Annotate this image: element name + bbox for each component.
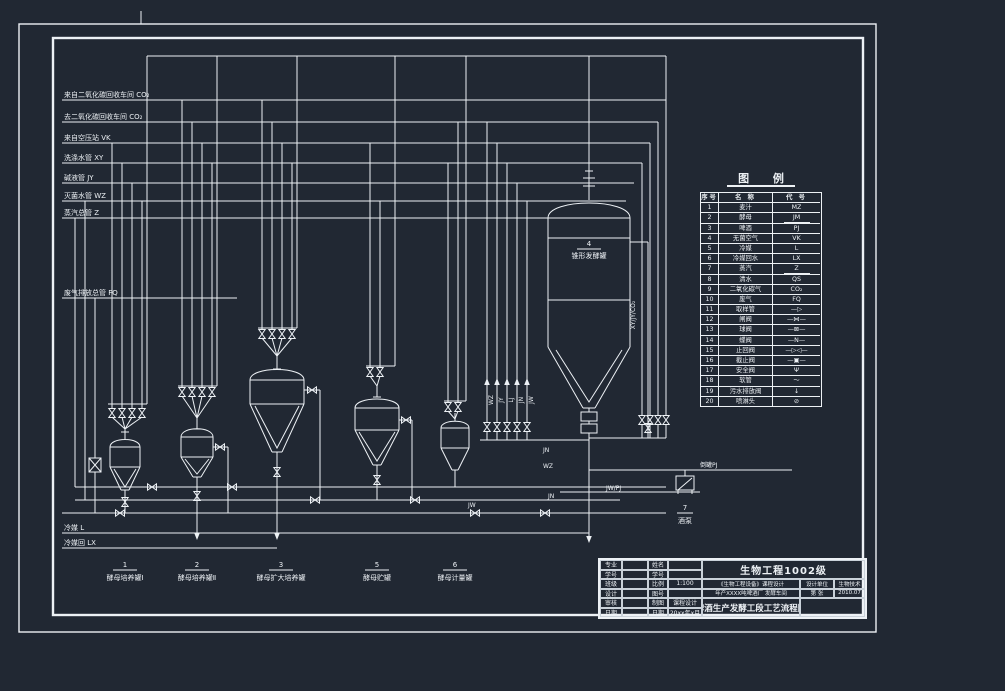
- legend-rows: 1 麦汁 MZ 2 酵母 JM 3 啤酒: [701, 203, 821, 406]
- tb-value: [622, 608, 648, 618]
- supply-label-xy: 洗涤水管 XY: [64, 153, 104, 162]
- legend-row-name: 冷媒: [719, 244, 773, 254]
- legend-row-name: 二氧化碳气: [719, 285, 773, 295]
- legend-row: 20 喷淋头 ⊘: [701, 397, 821, 406]
- coolant-return-label: 冷媒回 LX: [64, 538, 96, 547]
- equip-6-name: 酵母计量罐: [438, 573, 473, 582]
- feed-tag-jy: JY: [498, 397, 505, 404]
- equip-3-no: 3: [279, 561, 283, 569]
- legend-row-no: 16: [701, 356, 719, 366]
- legend-row-no: 14: [701, 336, 719, 346]
- legend-row-no: 17: [701, 366, 719, 376]
- equip-6-no: 6: [453, 561, 458, 569]
- legend-row-no: 10: [701, 295, 719, 305]
- legend-row-name: 止回阀: [719, 346, 773, 356]
- valves: [109, 330, 669, 517]
- tb-sheet: 第 张: [800, 589, 834, 599]
- tb-org: 生物技术: [834, 579, 865, 589]
- legend-row: 10 废气 FQ: [701, 295, 821, 305]
- tb-date: 2010.07: [834, 589, 865, 599]
- legend-row-no: 8: [701, 275, 719, 285]
- legend-row-code: FQ: [773, 295, 820, 305]
- beer-transfer-tag: 倒罐PJ: [700, 461, 718, 469]
- equip-5-no: 5: [375, 561, 379, 569]
- legend-row-code: MZ: [773, 203, 820, 213]
- tb-subtitle: 年产XXXX吨啤酒厂 发酵车间: [702, 589, 800, 599]
- vessel-5: [355, 397, 399, 465]
- legend-row-code: QS: [773, 275, 820, 285]
- legend-row-code: —▷◁—: [773, 346, 820, 356]
- legend-row-no: 12: [701, 315, 719, 325]
- legend-row-name: 清水: [719, 275, 773, 285]
- legend-table: 序号 名 称 代 号 1 麦汁 MZ 2 酵母 JM: [700, 192, 822, 407]
- feed-tag-jn: JN: [518, 397, 525, 404]
- legend-row-code: Z: [773, 264, 820, 274]
- legend-header-no: 序号: [701, 193, 719, 203]
- legend-row-no: 2: [701, 213, 719, 223]
- legend-row-code: LX: [773, 254, 820, 264]
- tb-empty-cell: [800, 598, 865, 617]
- tb-class-title: 生物工程1002级: [702, 560, 865, 579]
- tb-label: 班级: [600, 579, 622, 589]
- legend-row-no: 5: [701, 244, 719, 254]
- supply-label-air: 来自空压站 VK: [64, 133, 111, 142]
- legend-row: 19 污水排放阀 ↓: [701, 387, 821, 397]
- legend-row-code: CO₂: [773, 285, 820, 295]
- cad-drawing-canvas: 来自二氧化碳回收车间 CO₂ 去二氧化碳回收车间 CO₂ 来自空压站 VK 洗涤…: [0, 0, 1005, 691]
- legend-row: 5 冷媒 L: [701, 244, 821, 254]
- legend-row-name: 酵母: [719, 213, 773, 223]
- tb-value: [668, 560, 702, 570]
- tb-course: 《生物工程设备》课程设计: [702, 579, 800, 589]
- tb-label: 学号: [600, 570, 622, 580]
- legend-row: 3 啤酒 PJ: [701, 224, 821, 234]
- equip-3-name: 酵母扩大培养罐: [257, 573, 306, 582]
- legend-row-no: 1: [701, 203, 719, 213]
- equip-5-name: 酵母贮罐: [363, 573, 391, 582]
- equip-4-name: 锥形发酵罐: [572, 251, 607, 260]
- feed-tag-lj: LJ: [508, 397, 515, 402]
- legend-row: 11 取样管 —▷: [701, 305, 821, 315]
- tb-label: 日期: [600, 608, 622, 618]
- legend-row-name: 喷淋头: [719, 397, 773, 406]
- supply-label-jy: 碱液管 JY: [64, 173, 94, 182]
- pump-7: [676, 476, 694, 494]
- tb-value: 课程设计: [668, 598, 702, 608]
- legend-row-name: 冷媒回水: [719, 254, 773, 264]
- legend-row-no: 20: [701, 397, 719, 406]
- feed-tag-jw: JW: [528, 396, 535, 405]
- legend-row: 2 酵母 JM: [701, 213, 821, 223]
- legend-row-name: 无菌空气: [719, 234, 773, 244]
- piping-network: [62, 56, 792, 548]
- legend-row-no: 19: [701, 387, 719, 397]
- vessel-6: [441, 413, 469, 470]
- legend-row-code: —▷: [773, 305, 820, 315]
- tb-label: 学号: [648, 570, 668, 580]
- legend-row-code: —⋈—: [773, 315, 820, 325]
- legend-row: 17 安全阀 Ψ: [701, 366, 821, 376]
- equip-1-no: 1: [123, 561, 127, 569]
- legend-row: 12 闸阀 —⋈—: [701, 315, 821, 325]
- tb-value: [622, 579, 648, 589]
- tb-label: 姓名: [648, 560, 668, 570]
- equip-2-no: 2: [195, 561, 199, 569]
- legend-row-no: 11: [701, 305, 719, 315]
- legend-row-no: 13: [701, 325, 719, 335]
- supply-label-co2-out: 去二氧化碳回收车间 CO₂: [64, 112, 143, 121]
- tb-label: 日期: [648, 608, 668, 618]
- tb-value: [622, 598, 648, 608]
- legend-header-code: 代 号: [773, 193, 820, 203]
- legend-row: 8 清水 QS: [701, 275, 821, 285]
- equipment-labels: 1 酵母培养罐Ⅰ 2 酵母培养罐Ⅱ 3 酵母扩大培养罐 4 锥形发酵罐 5 酵母…: [106, 240, 693, 582]
- legend-row-code: ⊘: [773, 397, 820, 406]
- tb-label: 比例: [648, 579, 668, 589]
- offgas-label: 废气排放总管 FQ: [64, 288, 118, 297]
- vessel-2: [181, 429, 213, 477]
- feed-tag-wz: WZ: [488, 395, 495, 405]
- tb-drawing-title: 啤酒生产发酵工段工艺流程图: [702, 598, 800, 617]
- supply-label-steam: 蒸汽总管 Z: [64, 208, 99, 217]
- title-block: 专业 姓名 学号 学号 班级 比例 1:100 设计 图号 审核 制图 课程设计…: [598, 558, 867, 619]
- legend-row: 9 二氧化碳气 CO₂: [701, 285, 821, 295]
- jw-pj-tag: JW/PJ: [605, 485, 621, 492]
- legend-row-name: 污水排放阀: [719, 387, 773, 397]
- legend: 图 例 序号 名 称 代 号 1 麦汁 MZ 2 酵母: [700, 172, 822, 407]
- equip-7-no: 7: [683, 504, 687, 512]
- legend-row-code: ↓: [773, 387, 820, 397]
- tb-label: 专业: [600, 560, 622, 570]
- legend-row-code: JM: [773, 213, 820, 223]
- equip-7-name: 酒泵: [678, 517, 692, 525]
- legend-row: 18 软管 ～: [701, 376, 821, 386]
- supply-line-labels: 来自二氧化碳回收车间 CO₂ 去二氧化碳回收车间 CO₂ 来自空压站 VK 洗涤…: [64, 90, 150, 547]
- jn-tag-a: JN: [542, 447, 549, 454]
- legend-row-no: 4: [701, 234, 719, 244]
- riser-bundle-tag: XY/JY/CO₂: [630, 300, 637, 329]
- legend-row: 13 球阀 —⊠—: [701, 325, 821, 335]
- jw-tag-a: JW: [467, 502, 476, 509]
- stream-tags: 倒罐PJ JW/PJ JN WZ JW JN XY/JY/CO₂ WZ JY L…: [467, 300, 718, 509]
- legend-header-name: 名 称: [719, 193, 773, 203]
- legend-row-code: —⊠—: [773, 325, 820, 335]
- legend-row-name: 取样管: [719, 305, 773, 315]
- legend-row-name: 蒸汽: [719, 264, 773, 274]
- legend-row: 4 无菌空气 VK: [701, 234, 821, 244]
- legend-row-no: 18: [701, 376, 719, 386]
- legend-row: 15 止回阀 —▷◁—: [701, 346, 821, 356]
- vessel-1: [110, 432, 140, 490]
- tb-org-label: 设计单位: [800, 579, 834, 589]
- fermenter-4: [548, 171, 630, 433]
- legend-row-code: ～: [773, 376, 820, 386]
- legend-row-no: 15: [701, 346, 719, 356]
- legend-row-no: 9: [701, 285, 719, 295]
- tb-value: [622, 570, 648, 580]
- equip-1-name: 酵母培养罐Ⅰ: [106, 573, 143, 582]
- tb-value: [668, 570, 702, 580]
- legend-row-code: L: [773, 244, 820, 254]
- tb-value: [622, 589, 648, 599]
- supply-label-wz: 灭菌水管 WZ: [64, 191, 106, 200]
- wz-tag-a: WZ: [543, 463, 553, 470]
- legend-row-name: 闸阀: [719, 315, 773, 325]
- legend-row-name: 废气: [719, 295, 773, 305]
- legend-row: 6 冷媒回水 LX: [701, 254, 821, 264]
- tb-value: 1:100: [668, 579, 702, 589]
- legend-row-name: 蝶阀: [719, 336, 773, 346]
- legend-row-name: 截止阀: [719, 356, 773, 366]
- legend-row-code: VK: [773, 234, 820, 244]
- legend-row-name: 软管: [719, 376, 773, 386]
- tb-label: 图号: [648, 589, 668, 599]
- legend-row-code: —▣—: [773, 356, 820, 366]
- legend-row-no: 3: [701, 224, 719, 234]
- legend-row: 16 截止阀 —▣—: [701, 356, 821, 366]
- legend-row-name: 啤酒: [719, 224, 773, 234]
- vessel-3: [250, 369, 304, 452]
- legend-row: 7 蒸汽 Z: [701, 264, 821, 274]
- tb-label: 设计: [600, 589, 622, 599]
- supply-label-co2-in: 来自二氧化碳回收车间 CO₂: [64, 90, 150, 99]
- legend-row: 1 麦汁 MZ: [701, 203, 821, 213]
- legend-title: 图 例: [727, 172, 795, 187]
- legend-row-no: 7: [701, 264, 719, 274]
- legend-row-name: 麦汁: [719, 203, 773, 213]
- tb-value: [668, 589, 702, 599]
- legend-row-no: 6: [701, 254, 719, 264]
- legend-row-name: 球阀: [719, 325, 773, 335]
- legend-row-name: 安全阀: [719, 366, 773, 376]
- tb-label: 制图: [648, 598, 668, 608]
- air-filter: [89, 458, 101, 472]
- jn-tag-b: JN: [547, 493, 554, 500]
- legend-row-code: Ψ: [773, 366, 820, 376]
- tb-label: 审核: [600, 598, 622, 608]
- tb-value: 20xx年x月: [668, 608, 702, 618]
- legend-row-code: PJ: [773, 224, 820, 234]
- legend-row-code: —Ν—: [773, 336, 820, 346]
- tb-value: [622, 560, 648, 570]
- legend-row: 14 蝶阀 —Ν—: [701, 336, 821, 346]
- coolant-supply-label: 冷媒 L: [64, 523, 84, 532]
- equip-2-name: 酵母培养罐Ⅱ: [178, 573, 216, 582]
- legend-header-row: 序号 名 称 代 号: [701, 193, 821, 203]
- equip-4-no: 4: [587, 240, 592, 248]
